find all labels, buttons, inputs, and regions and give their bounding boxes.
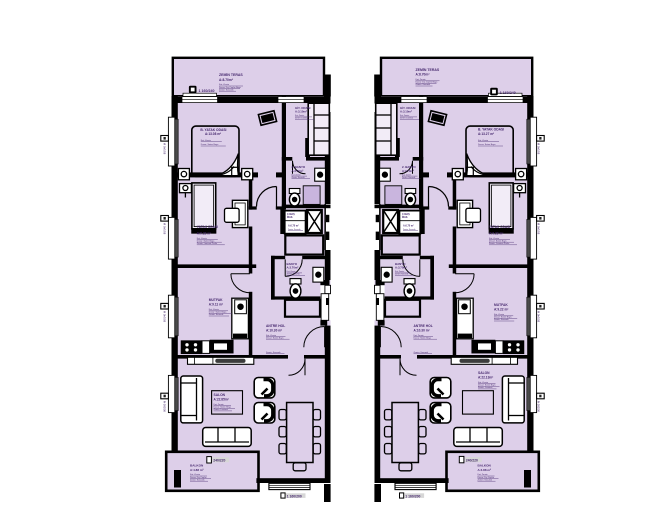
svg-text:A:3.70m²: A:3.70m²: [287, 266, 299, 270]
svg-text:Kat: Zemin: Kat: Zemin: [266, 334, 277, 337]
svg-text:MAK.: MAK.: [402, 216, 408, 219]
svg-text:Kat: Zemin: Kat: Zemin: [478, 139, 489, 142]
svg-text:Kat: Zemin: Kat: Zemin: [489, 237, 500, 240]
svg-text:Duvar: Saten Boya: Duvar: Saten Boya: [209, 311, 227, 314]
svg-text:A:3.70m²: A:3.70m²: [395, 266, 407, 270]
svg-text:A:22.85m²: A:22.85m²: [214, 398, 229, 402]
svg-text:A:3.10m²: A:3.10m²: [400, 110, 412, 114]
svg-text:BALKON: BALKON: [478, 463, 492, 467]
svg-text:Duvar: Saten Boya: Duvar: Saten Boya: [414, 336, 432, 339]
svg-text:Duvar: Saten Boya: Duvar: Saten Boya: [478, 143, 496, 146]
svg-text:Duvar: Saten Boya: Duvar: Saten Boya: [266, 336, 284, 339]
svg-text:Kat: Zemin: Kat: Zemin: [201, 139, 212, 142]
svg-text:1 160/240: 1 160/240: [500, 91, 516, 95]
svg-text:Zemin: Laminat: Zemin: Laminat: [478, 386, 493, 389]
svg-text:Kat: Zemin: Kat: Zemin: [209, 308, 220, 311]
svg-text:ZEMİN TERAS: ZEMİN TERAS: [219, 73, 243, 77]
svg-text:80/140 M: 80/140 M: [536, 222, 540, 234]
svg-text:MUTFAK: MUTFAK: [209, 298, 223, 302]
svg-text:A:9.22 m²: A:9.22 m²: [197, 231, 211, 235]
svg-text:Duvar: Dış Cephe Boya: Duvar: Dış Cephe Boya: [219, 86, 242, 89]
svg-text:MUTFAK: MUTFAK: [494, 303, 508, 307]
svg-text:1 160/200: 1 160/200: [287, 494, 302, 498]
svg-text:80/140 M: 80/140 M: [163, 142, 167, 154]
svg-text:SALON: SALON: [214, 393, 226, 397]
svg-text:A:2.70m²: A:2.70m²: [292, 169, 304, 173]
svg-text:YATAK ODASI: YATAK ODASI: [489, 225, 510, 229]
svg-text:A:13.27 m²: A:13.27 m²: [478, 132, 494, 136]
svg-text:Zemin: Seramik: Zemin: Seramik: [414, 351, 430, 354]
svg-text:Kat: Zemin: Kat: Zemin: [494, 313, 505, 316]
svg-text:Kat: Zemin: Kat: Zemin: [197, 237, 208, 240]
svg-text:Kat: Zemin: Kat: Zemin: [190, 473, 201, 476]
svg-text:A:8.70m²: A:8.70m²: [416, 73, 431, 77]
svg-text:A:4.88 m²: A:4.88 m²: [190, 468, 204, 472]
svg-text:80/140 M: 80/140 M: [536, 310, 540, 322]
svg-text:Kat: Zemin: Kat: Zemin: [416, 78, 427, 81]
svg-text:1 160/240: 1 160/240: [199, 89, 215, 93]
svg-text:1 160/200: 1 160/200: [405, 494, 420, 498]
svg-text:ANTRE HOL: ANTRE HOL: [414, 324, 433, 328]
svg-text:Duvar: Dış Cephe Boya: Duvar: Dış Cephe Boya: [416, 81, 439, 84]
svg-text:Zemin: Laminat Parke: Zemin: Laminat Parke: [489, 242, 510, 245]
svg-text:Duvar: Dış Cephe: Duvar: Dış Cephe: [478, 476, 495, 479]
svg-text:A:3.10m²: A:3.10m²: [295, 110, 307, 114]
svg-text:A:0.70 m²: A:0.70 m²: [403, 224, 414, 228]
svg-text:A:22.13m²: A:22.13m²: [478, 376, 493, 380]
svg-text:A:2.70m²: A:2.70m²: [402, 169, 414, 173]
svg-text:YATAK ODASI: YATAK ODASI: [197, 225, 218, 229]
svg-text:Zemin: Seramik: Zemin: Seramik: [219, 88, 235, 91]
svg-text:B. YATAK ODASI: B. YATAK ODASI: [478, 127, 504, 131]
svg-text:Zemin: Laminat: Zemin: Laminat: [214, 408, 229, 411]
svg-text:A:9.11 m²: A:9.11 m²: [209, 303, 223, 307]
svg-text:A:10.30 m²: A:10.30 m²: [414, 328, 430, 332]
svg-text:Duvar: Saten Boya: Duvar: Saten Boya: [489, 239, 507, 242]
svg-text:80/260 M: 80/260 M: [163, 400, 167, 412]
svg-text:A:9.22 m²: A:9.22 m²: [489, 231, 503, 235]
svg-text:A:10.30 m²: A:10.30 m²: [266, 328, 282, 332]
svg-text:BALKON: BALKON: [190, 463, 204, 467]
svg-text:240/220: 240/220: [213, 459, 225, 463]
svg-text:80/140 M: 80/140 M: [163, 310, 167, 322]
svg-text:Duvar: Saten Boya: Duvar: Saten Boya: [197, 239, 215, 242]
svg-text:240/220: 240/220: [466, 458, 478, 462]
svg-text:A:9.22 m²: A:9.22 m²: [494, 308, 508, 312]
svg-text:Zemin: Seramik: Zemin: Seramik: [209, 313, 225, 316]
svg-text:Zemin: Seramik: Zemin: Seramik: [416, 83, 432, 86]
svg-text:A:0.70 m²: A:0.70 m²: [288, 224, 299, 228]
svg-text:Kat: Zemin: Kat: Zemin: [478, 381, 489, 384]
svg-text:80/140 M: 80/140 M: [163, 222, 167, 234]
svg-text:Zemin: Seramik: Zemin: Seramik: [494, 318, 510, 321]
svg-text:80/260 M: 80/260 M: [536, 400, 540, 412]
svg-text:A:8.70m²: A:8.70m²: [219, 78, 234, 82]
svg-text:Duvar: Saten Boya: Duvar: Saten Boya: [214, 406, 232, 409]
svg-text:Zemin: Seramik: Zemin: Seramik: [266, 351, 282, 354]
svg-text:Duvar: Dış Cephe: Duvar: Dış Cephe: [190, 476, 207, 479]
svg-text:Kat: Zemin: Kat: Zemin: [478, 473, 489, 476]
svg-text:Kat: Zemin: Kat: Zemin: [414, 334, 425, 337]
svg-text:MAK.: MAK.: [287, 216, 293, 219]
svg-text:80/140 M: 80/140 M: [536, 142, 540, 154]
svg-text:ANTRE HOL: ANTRE HOL: [266, 324, 285, 328]
svg-text:SALON: SALON: [478, 371, 490, 375]
svg-text:Zemin: Seramik: Zemin: Seramik: [190, 478, 206, 481]
svg-text:ZEMİN TERAS: ZEMİN TERAS: [416, 68, 440, 72]
svg-text:Duvar: Saten Boya: Duvar: Saten Boya: [494, 316, 512, 319]
svg-text:Zemin: Seramik: Zemin: Seramik: [478, 478, 494, 481]
svg-text:Duvar: Saten Boya: Duvar: Saten Boya: [201, 143, 219, 146]
svg-text:A:13.08 m²: A:13.08 m²: [205, 132, 221, 136]
svg-text:Kat: Zemin: Kat: Zemin: [214, 403, 225, 406]
svg-text:Zemin: Laminat Parke: Zemin: Laminat Parke: [197, 242, 218, 245]
svg-text:A:4.88 m²: A:4.88 m²: [478, 468, 492, 472]
svg-text:Kat: Zemin: Kat: Zemin: [219, 83, 230, 86]
svg-text:Duvar: Saten Boya: Duvar: Saten Boya: [478, 384, 496, 387]
